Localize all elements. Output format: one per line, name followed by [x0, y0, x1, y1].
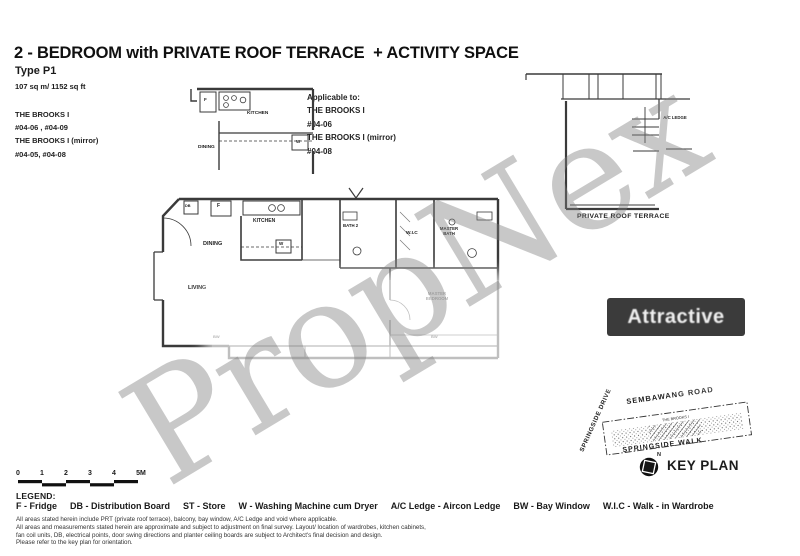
- room-label-dining: DINING: [198, 145, 215, 150]
- scale-bar: [18, 480, 138, 486]
- attractive-badge-label: Attractive: [627, 306, 724, 329]
- room-label-washer: W: [279, 242, 283, 247]
- key-plan-site: THE BROOKS I: [602, 402, 751, 455]
- room-label-ac-ledge: A/C LEDGE: [663, 115, 687, 120]
- upper-plan-lines: [191, 89, 313, 174]
- roof-terrace-caption: PRIVATE ROOF TERRACE: [577, 213, 670, 220]
- room-label-kitchen: KITCHEN: [253, 219, 275, 225]
- room-label-db: DB: [185, 204, 190, 208]
- room-label-wic: W.I.C: [406, 231, 418, 236]
- plan-linework: THE BROOKS I: [0, 0, 800, 556]
- attractive-badge: Attractive: [607, 298, 745, 336]
- room-label-fridge: F: [204, 98, 207, 103]
- room-label-washer: W: [296, 140, 300, 145]
- room-label-kitchen: KITCHEN: [247, 111, 268, 116]
- room-label-dining: DINING: [203, 241, 222, 247]
- room-label-living: LIVING: [188, 285, 206, 291]
- floorplan-sheet: THE BROOKS I 2 - BEDROOM with PRIVATE RO…: [0, 0, 800, 556]
- room-label-fridge: F: [217, 204, 220, 210]
- compass-icon: [640, 458, 658, 476]
- room-label-bath2: BATH 2: [343, 224, 358, 229]
- room-label-master-bath: MASTER BATH: [436, 226, 462, 236]
- roof-terrace-lines: [526, 74, 692, 209]
